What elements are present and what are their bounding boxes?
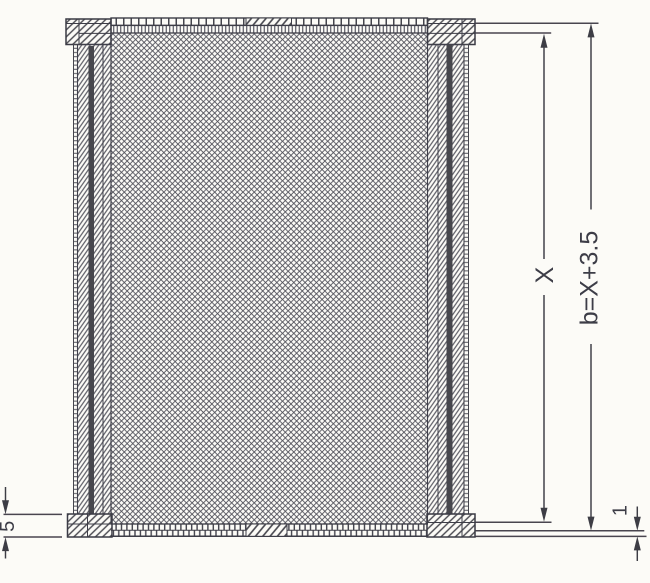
- svg-text:b=X+3.5: b=X+3.5: [576, 231, 604, 326]
- svg-text:5: 5: [0, 521, 19, 532]
- svg-text:1: 1: [610, 505, 632, 516]
- svg-text:X: X: [531, 266, 559, 283]
